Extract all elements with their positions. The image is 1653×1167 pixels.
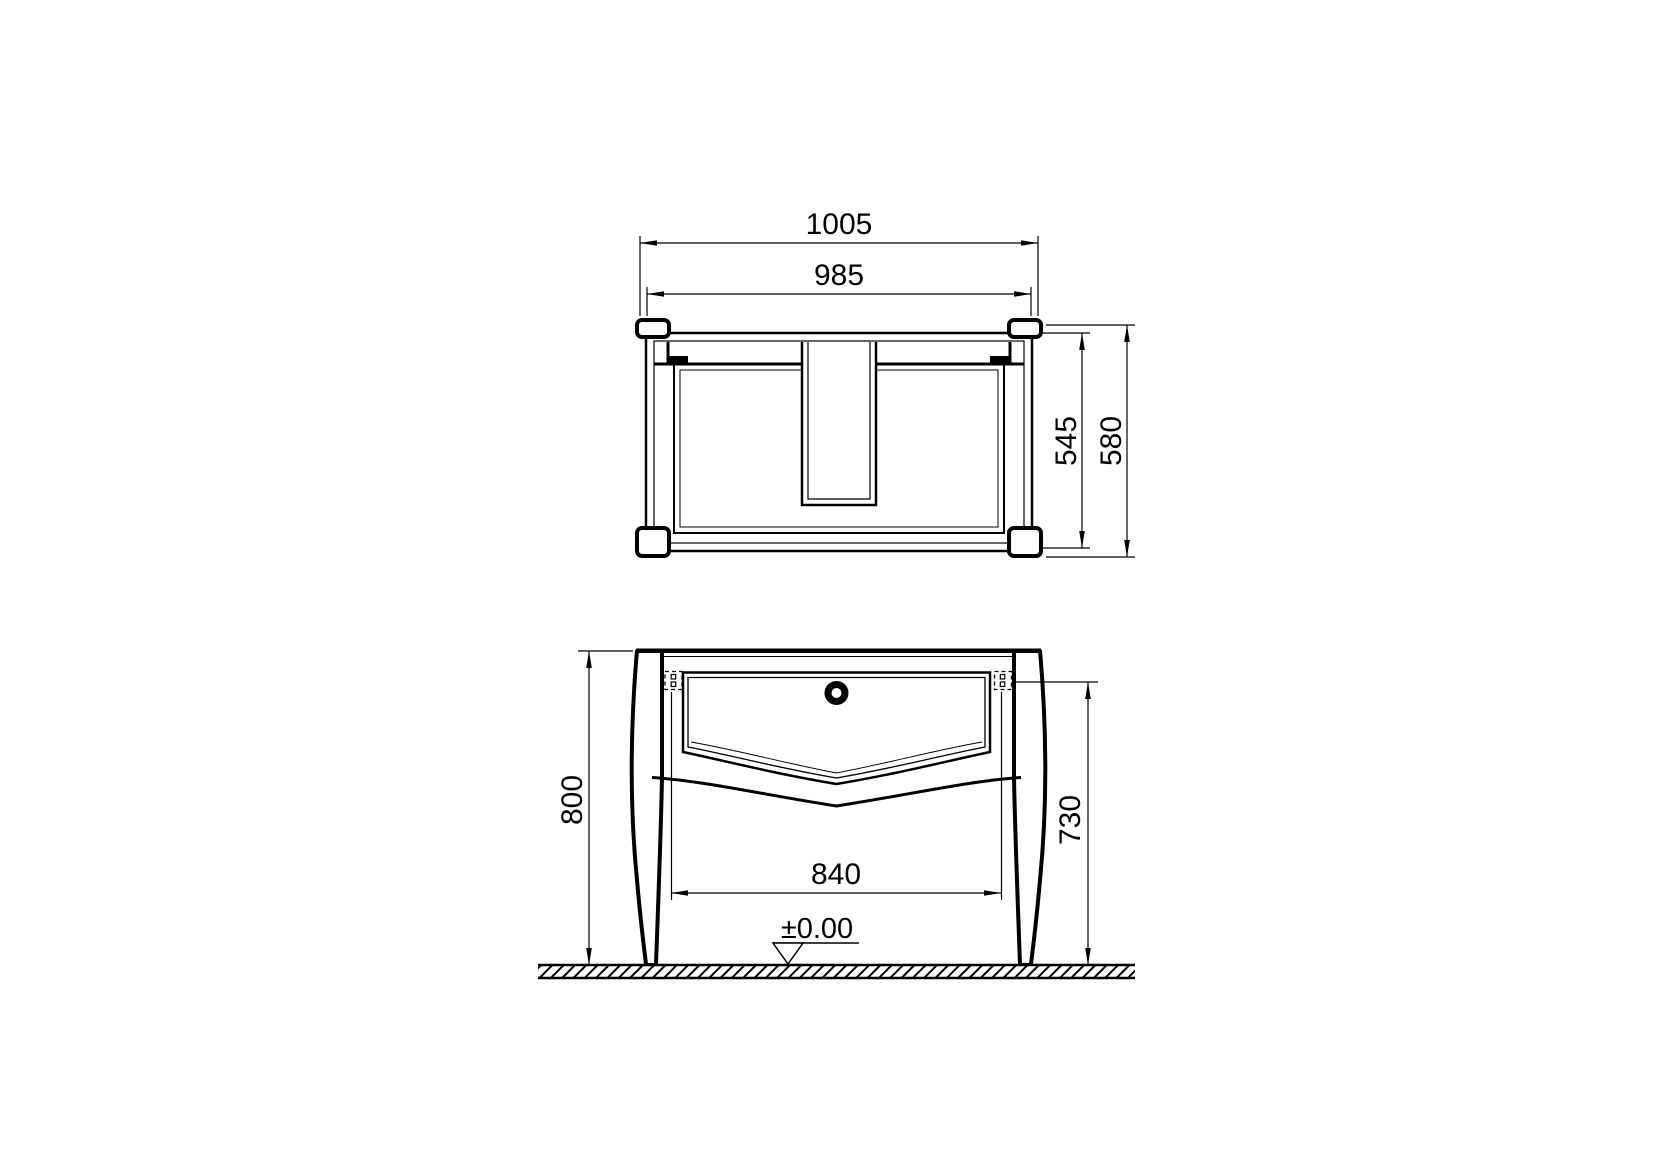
drawing-canvas: 1005 985 545 580 [0, 0, 1653, 1167]
arrowhead [1085, 948, 1091, 965]
dimension-width-inner: 985 [647, 259, 1031, 316]
arrowhead [586, 948, 592, 965]
ground-line [538, 965, 1135, 978]
dimension-width-between-legs: 840 [671, 692, 1002, 900]
dimension-height-overall: 800 [556, 651, 633, 965]
dim-label-width-overall: 1005 [806, 208, 873, 241]
dim-label-width-inner: 985 [814, 259, 864, 292]
dimension-height-underside: 730 [1013, 682, 1098, 965]
arrowhead [647, 291, 664, 297]
left-hinge-bracket [665, 672, 682, 690]
dim-label-height-underside: 730 [1054, 795, 1087, 845]
arrowhead [1079, 531, 1085, 548]
dim-label-width-between-legs: 840 [811, 858, 861, 891]
left-leg [632, 650, 662, 964]
arrowhead [640, 240, 657, 246]
dim-label-depth-overall: 580 [1095, 416, 1128, 466]
apron-curve [652, 778, 1021, 807]
datum-triangle-icon [773, 943, 803, 964]
right-hinge-bracket [995, 672, 1012, 690]
dimension-depth-inner: 545 [1040, 333, 1090, 548]
left-slide-bracket [668, 356, 688, 364]
arrowhead [1124, 540, 1130, 557]
leg-post-top-left [637, 320, 669, 337]
dim-label-height-overall: 800 [556, 775, 589, 825]
arrowhead [586, 651, 592, 668]
leg-post-bottom-right [1009, 528, 1041, 556]
dim-label-depth-inner: 545 [1050, 416, 1083, 466]
technical-drawing: 1005 985 545 580 [0, 0, 1653, 1167]
top-view [637, 320, 1041, 556]
arrowhead [1021, 240, 1038, 246]
arrowhead [984, 890, 1001, 896]
arrowhead [1124, 325, 1130, 342]
leg-post-bottom-left [637, 528, 669, 556]
countertop-edge [636, 649, 1041, 654]
top-view-dimensions: 1005 985 545 580 [640, 208, 1135, 557]
siphon-channel-outer [802, 342, 876, 505]
arrowhead [671, 890, 688, 896]
drawer-front [683, 673, 990, 785]
right-slide-bracket [990, 356, 1010, 364]
arrowhead [1079, 333, 1085, 350]
arrowhead [1014, 291, 1031, 297]
drawer-knob [828, 685, 845, 702]
right-leg [1014, 650, 1045, 964]
floor-level-datum: ±0.00 [773, 913, 859, 964]
arrowhead [1085, 682, 1091, 699]
floor-level-label: ±0.00 [781, 913, 853, 945]
leg-post-top-right [1009, 320, 1041, 337]
